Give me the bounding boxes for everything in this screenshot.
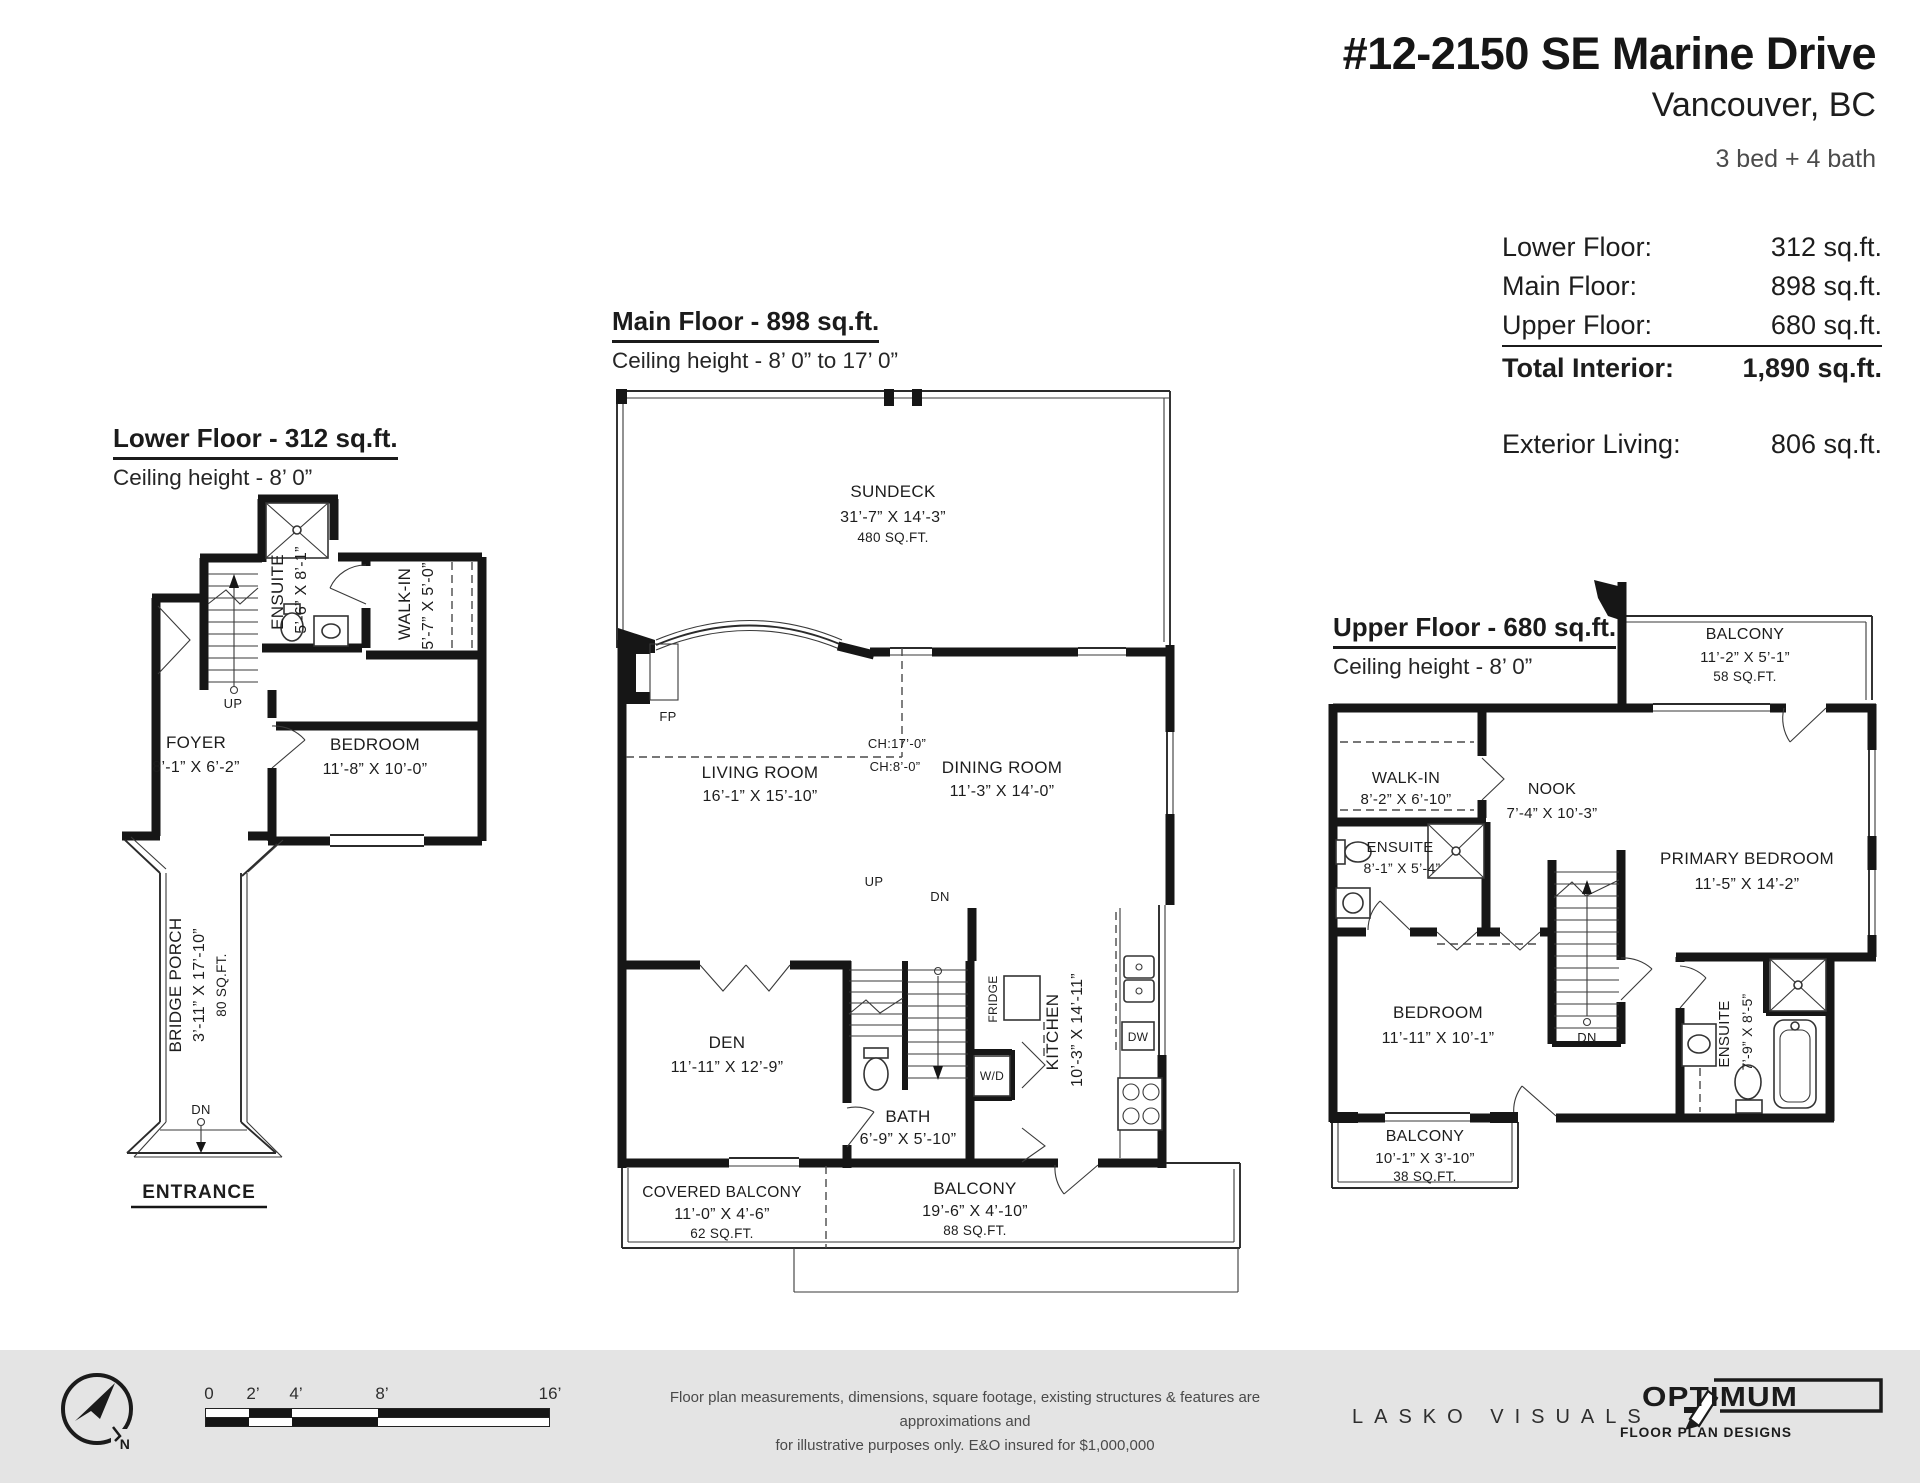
sundeck-label: SUNDECK — [850, 482, 936, 501]
living-dims: 16’-1” X 15’-10” — [702, 788, 817, 805]
ensuite-left-label: ENSUITE — [1366, 839, 1433, 856]
kitchen-door-chevrons — [1022, 1042, 1045, 1162]
upper-dn-label: DN — [1577, 1030, 1596, 1045]
lower-walkin-dims: 5’-7” X 5’-0” — [420, 562, 437, 649]
nook-dims: 7’-4” X 10’-3” — [1507, 805, 1598, 822]
sink-icon — [1336, 888, 1370, 918]
stat-label: Exterior Living: — [1502, 425, 1681, 464]
porch-dims: 3’-11” X 17’-10” — [191, 928, 208, 1042]
porch-arrow-down — [196, 1142, 206, 1153]
ensuite-left-door — [1368, 901, 1410, 930]
lower-walkin-label: WALK-IN — [395, 568, 414, 640]
lower-foyer-label: FOYER — [166, 733, 226, 752]
area-summary: Lower Floor: 312 sq.ft. Main Floor: 898 … — [1502, 228, 1882, 464]
lower-ensuite-label: ENSUITE — [268, 554, 287, 630]
primary-door — [1621, 958, 1652, 1000]
bath-dims: 6’-9” X 5’-10” — [860, 1131, 957, 1148]
beds-baths: 3 bed + 4 bath — [1343, 145, 1876, 174]
walkin-door-chevron — [1482, 758, 1504, 800]
stair-arrow-up — [1582, 880, 1592, 894]
upper-balcony-top-railing — [1622, 582, 1872, 704]
stat-row-lower: Lower Floor: 312 sq.ft. — [1502, 228, 1882, 267]
main-floor-title: Main Floor - 898 sq.ft. — [612, 306, 879, 343]
stat-value: 898 sq.ft. — [1771, 267, 1882, 306]
balcony-area: 88 SQ.FT. — [943, 1223, 1006, 1238]
footer-band: N 0 2’ 4’ 8’ 16’ Floor plan measurements… — [0, 1350, 1920, 1483]
scale-tick-0: 0 — [194, 1384, 224, 1404]
page-subtitle: Vancouver, BC — [1343, 86, 1876, 125]
lower-ensuite-dims: 5’-6” X 8’-1” — [293, 546, 310, 633]
main-labels: SUNDECK 31’-7” X 14’-3” 480 SQ.FT. FP CH… — [642, 482, 1148, 1241]
lower-bedroom-label: BEDROOM — [330, 735, 420, 754]
covered-balcony-dims: 11’-0” X 4’-6” — [674, 1206, 770, 1223]
nook-label: NOOK — [1528, 781, 1576, 798]
scale-tick-16: 16’ — [535, 1384, 565, 1404]
ensuite-right-dims: 7’-9” X 8’-5” — [1739, 993, 1755, 1070]
stat-row-exterior: Exterior Living: 806 sq.ft. — [1502, 425, 1882, 464]
scale-tick-2: 2’ — [238, 1384, 268, 1404]
sink-icon-right — [1682, 1024, 1716, 1066]
disclaimer-line2: for illustrative purposes only. E&O insu… — [640, 1434, 1290, 1458]
balcony-step-outline — [794, 1248, 1238, 1292]
disclaimer-line1: Floor plan measurements, dimensions, squ… — [640, 1386, 1290, 1434]
toilet-icon — [864, 1048, 888, 1090]
lower-floor-plan: ENSUITE 5’-6” X 8’-1” WALK-IN 5’-7” X 5’… — [95, 485, 535, 1215]
stat-label: Main Floor: — [1502, 267, 1637, 306]
lasko-visuals-logo: LASKO VISUALS — [1352, 1406, 1652, 1429]
toilet-icon-right — [1735, 1065, 1762, 1113]
stat-row-upper: Upper Floor: 680 sq.ft. — [1502, 306, 1882, 347]
porch-label: BRIDGE PORCH — [166, 918, 185, 1053]
bedroom-window — [330, 835, 424, 846]
lower-foyer-dims: 8’-1” X 6’-2” — [152, 759, 239, 776]
sink-icon — [1124, 956, 1154, 978]
kitchen-label: KITCHEN — [1043, 994, 1062, 1071]
balcony-door — [1055, 1165, 1098, 1194]
upper-stairs — [1554, 872, 1619, 1028]
lower-floor-title: Lower Floor - 312 sq.ft. — [113, 423, 398, 460]
disclaimer: Floor plan measurements, dimensions, squ… — [640, 1386, 1290, 1458]
fireplace-icon — [620, 640, 678, 704]
balcony-top-label: BALCONY — [1706, 626, 1785, 643]
fridge-label: FRIDGE — [986, 975, 1000, 1022]
porch-area: 80 SQ.FT. — [214, 953, 229, 1016]
balcony-label: BALCONY — [933, 1179, 1016, 1198]
entrance-label: ENTRANCE — [142, 1182, 256, 1203]
listing-header: #12-2150 SE Marine Drive Vancouver, BC 3… — [1343, 28, 1876, 174]
balcony-top-door — [1783, 708, 1826, 742]
scale-bar-row-bottom — [205, 1417, 550, 1427]
optimum-name: OPTIMUM — [1642, 1381, 1798, 1412]
optimum-logo: OPTIMUM FLOOR PLAN DESIGNS — [1684, 1377, 1894, 1447]
compass-icon: N — [55, 1365, 145, 1460]
page-title: #12-2150 SE Marine Drive — [1343, 28, 1876, 80]
primary-label: PRIMARY BEDROOM — [1660, 849, 1834, 868]
upper-walkin-dims: 8’-2” X 6’-10” — [1361, 791, 1452, 808]
optimum-tagline: FLOOR PLAN DESIGNS — [1620, 1424, 1792, 1440]
stat-label: Lower Floor: — [1502, 228, 1652, 267]
main-floor-plan: SUNDECK 31’-7” X 14’-3” 480 SQ.FT. FP CH… — [595, 370, 1295, 1370]
balcony-bottom-dims: 10’-1” X 3’-10” — [1375, 1150, 1475, 1167]
scale-tick-4: 4’ — [281, 1384, 311, 1404]
main-floor-header: Main Floor - 898 sq.ft. Ceiling height -… — [612, 306, 898, 374]
main-dn-label: DN — [930, 889, 949, 904]
stat-value: 312 sq.ft. — [1771, 228, 1882, 267]
sundeck-dims: 31’-7” X 14’-3” — [840, 509, 946, 526]
upper-floor-plan: BALCONY 11’-2” X 5’-1” 58 SQ.FT. WALK-IN… — [1300, 555, 1920, 1255]
stat-label: Total Interior: — [1502, 349, 1674, 388]
stair-arrow-up — [229, 574, 239, 588]
ceiling-height-dash — [626, 648, 902, 757]
stat-value: 680 sq.ft. — [1771, 306, 1882, 345]
lower-up-label: UP — [224, 696, 243, 711]
bath-label: BATH — [885, 1107, 930, 1126]
ch17-label: CH:17’-0” — [868, 736, 926, 751]
den-dims: 11’-11” X 12’-9” — [671, 1059, 784, 1076]
lower-dn-label: DN — [191, 1102, 210, 1117]
balcony-bottom-area: 38 SQ.FT. — [1393, 1169, 1456, 1184]
balcony-dims: 19’-6” X 4’-10” — [922, 1203, 1028, 1220]
dining-label: DINING ROOM — [942, 758, 1062, 777]
dw-label: DW — [1128, 1030, 1149, 1044]
living-label: LIVING ROOM — [702, 763, 819, 782]
sink-icon — [314, 616, 348, 646]
covered-balcony-label: COVERED BALCONY — [642, 1184, 802, 1201]
floorplan-page: #12-2150 SE Marine Drive Vancouver, BC 3… — [0, 0, 1920, 1483]
covered-balcony-area: 62 SQ.FT. — [690, 1226, 753, 1241]
lower-floor-header: Lower Floor - 312 sq.ft. Ceiling height … — [113, 423, 398, 491]
kitchen-dims: 10’-3” X 14’-11” — [1069, 973, 1086, 1087]
main-walls — [618, 621, 1173, 1169]
dining-dims: 11’-3” X 14’-0” — [950, 783, 1055, 800]
stat-row-total: Total Interior: 1,890 sq.ft. — [1502, 349, 1882, 388]
den-label: DEN — [709, 1033, 746, 1052]
balcony-bottom-door — [1514, 1086, 1556, 1116]
scale-tick-8: 8’ — [367, 1384, 397, 1404]
primary-dims: 11’-5” X 14’-2” — [1695, 876, 1800, 893]
entry-bifold-door — [158, 606, 190, 674]
stat-label: Upper Floor: — [1502, 306, 1652, 345]
svg-text:N: N — [120, 1436, 130, 1452]
balcony-top-area: 58 SQ.FT. — [1713, 669, 1776, 684]
lower-bedroom-dims: 11’-8” X 10’-0” — [323, 761, 428, 778]
ensuite-right-label: ENSUITE — [1716, 1000, 1733, 1067]
upper-bedroom-label: BEDROOM — [1393, 1003, 1483, 1022]
main-up-label: UP — [865, 874, 884, 889]
sundeck-area: 480 SQ.FT. — [857, 530, 928, 545]
stat-row-main: Main Floor: 898 sq.ft. — [1502, 267, 1882, 306]
walkin-closet-dash — [452, 562, 472, 648]
scale-bar: 0 2’ 4’ 8’ 16’ — [205, 1384, 557, 1428]
upper-bedroom-dims: 11’-11” X 10’-1” — [1382, 1030, 1495, 1047]
bathtub-icon — [1774, 1020, 1816, 1108]
balcony-bottom-label: BALCONY — [1386, 1128, 1465, 1145]
den-double-door — [700, 965, 790, 991]
ensuite-right-door — [1680, 966, 1706, 1008]
upper-walkin-label: WALK-IN — [1372, 770, 1440, 787]
ensuite-left-dims: 8’-1” X 5’-4” — [1363, 860, 1440, 876]
lower-stairs — [208, 574, 258, 694]
shower-icon-right — [1770, 959, 1826, 1011]
ch8-label: CH:8’-0” — [870, 759, 921, 774]
balcony-top-dims: 11’-2” X 5’-1” — [1700, 649, 1790, 666]
fireplace-label: FP — [659, 709, 676, 724]
stat-value: 806 sq.ft. — [1771, 425, 1882, 464]
stat-value: 1,890 sq.ft. — [1742, 349, 1882, 388]
wd-label: W/D — [980, 1069, 1004, 1083]
